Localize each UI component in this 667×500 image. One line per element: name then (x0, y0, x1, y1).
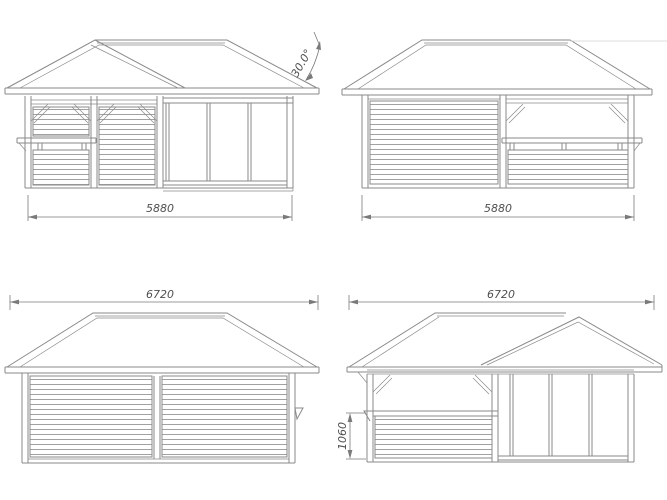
roof-angle-annotation: 30.0° (289, 32, 321, 81)
counter-end-bracket (295, 408, 303, 419)
counter-end-bracket (364, 411, 373, 421)
front-elevation-drawing: 30.0° (0, 0, 334, 250)
roof (5, 40, 319, 94)
walls (22, 373, 303, 463)
front-elevation-view: 30.0° (0, 0, 334, 250)
width-dimension-label: 5880 (146, 202, 174, 215)
bar-wall-height-label: 1060 (336, 422, 349, 450)
rear-elevation-view: 5880 (334, 0, 667, 250)
roof (347, 313, 662, 372)
pavilion-elevation-sheet: 30.0° (0, 0, 667, 500)
walls (362, 95, 642, 188)
bar-wall-height-dimension: 1060 (336, 413, 366, 459)
side-elevation-closed-view: 6720 (0, 250, 334, 500)
roof (342, 40, 667, 95)
side-elevation-closed-drawing: 6720 (0, 250, 334, 500)
width-dimension-label: 6720 (487, 288, 515, 301)
width-dimension: 5880 (362, 195, 634, 221)
width-dimension: 6720 (349, 288, 654, 310)
width-dimension-label: 5880 (484, 202, 512, 215)
rear-elevation-drawing: 5880 (334, 0, 667, 250)
walls (17, 96, 293, 191)
width-dimension: 6720 (10, 288, 318, 310)
width-dimension: 5880 (28, 195, 292, 221)
side-elevation-bar-drawing: 6720 (334, 250, 667, 500)
roof (5, 313, 319, 373)
walls (358, 370, 634, 462)
width-dimension-label: 6720 (146, 288, 174, 301)
side-elevation-bar-view: 6720 (334, 250, 667, 500)
